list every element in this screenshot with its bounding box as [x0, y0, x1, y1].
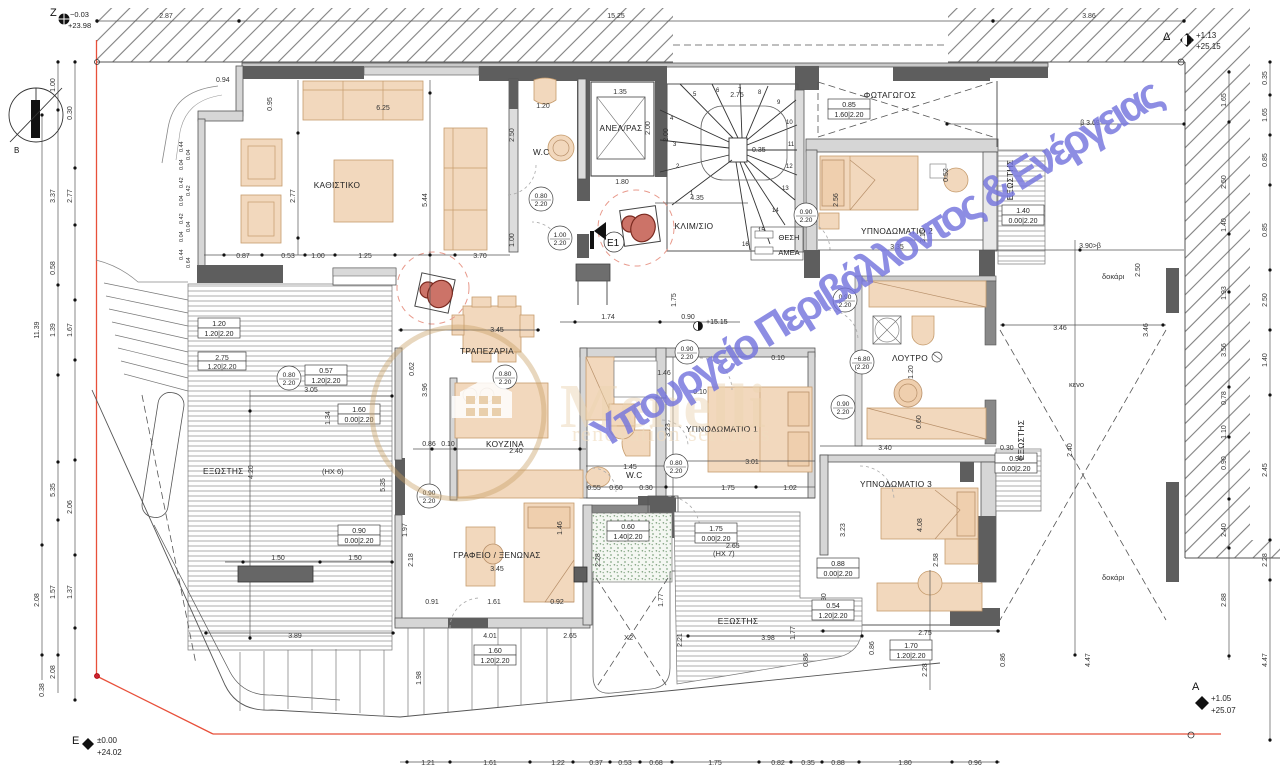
- svg-text:1.40: 1.40: [1221, 218, 1228, 232]
- svg-text:1.20: 1.20: [212, 321, 226, 328]
- svg-text:0.62: 0.62: [409, 362, 416, 376]
- svg-text:2.87: 2.87: [159, 13, 173, 20]
- svg-text:0.00|2.20: 0.00|2.20: [1008, 218, 1037, 225]
- svg-text:2.20: 2.20: [423, 498, 436, 505]
- svg-text:4.01: 4.01: [483, 633, 497, 640]
- svg-text:1.20|2.20: 1.20|2.20: [818, 613, 847, 620]
- svg-text:1.77: 1.77: [790, 626, 797, 640]
- svg-text:ΑΜΕΑ: ΑΜΕΑ: [778, 248, 799, 257]
- svg-text:0.30: 0.30: [67, 106, 74, 120]
- svg-text:1.75: 1.75: [708, 760, 722, 767]
- svg-text:2.75: 2.75: [730, 92, 744, 99]
- svg-text:0.78: 0.78: [1221, 391, 1228, 405]
- svg-text:2.40: 2.40: [1221, 523, 1228, 537]
- svg-text:6.25: 6.25: [376, 105, 390, 112]
- svg-text:1.00: 1.00: [554, 232, 567, 239]
- svg-text:2.45: 2.45: [1262, 463, 1269, 477]
- svg-text:1.40: 1.40: [1016, 208, 1030, 215]
- svg-text:0.44: 0.44: [179, 141, 185, 152]
- svg-text:Z: Z: [50, 7, 57, 19]
- svg-text:0.52: 0.52: [943, 168, 950, 182]
- svg-text:X2: X2: [624, 633, 633, 642]
- svg-text:14: 14: [772, 208, 779, 214]
- svg-text:1.22: 1.22: [551, 760, 565, 767]
- svg-text:0.68: 0.68: [649, 760, 663, 767]
- svg-text:0.30: 0.30: [639, 485, 653, 492]
- svg-text:1.60: 1.60: [488, 648, 502, 655]
- svg-text:1.65: 1.65: [1221, 93, 1228, 107]
- svg-text:ΛΟΥΤΡΟ: ΛΟΥΤΡΟ: [892, 353, 928, 363]
- svg-text:1.20: 1.20: [908, 365, 915, 379]
- svg-text:Β: Β: [14, 146, 19, 155]
- svg-text:0.04: 0.04: [179, 231, 185, 242]
- svg-text:4.47: 4.47: [1085, 653, 1092, 667]
- svg-text:2.21: 2.21: [677, 633, 684, 647]
- svg-text:0.88: 0.88: [831, 561, 845, 568]
- svg-text:0.04: 0.04: [186, 149, 192, 160]
- svg-text:+23.98: +23.98: [68, 21, 91, 30]
- svg-text:0.96: 0.96: [968, 760, 982, 767]
- svg-text:1.74: 1.74: [601, 314, 615, 321]
- svg-text:0.42: 0.42: [179, 213, 185, 224]
- svg-text:1.20|2.20: 1.20|2.20: [207, 364, 236, 371]
- svg-text:ΕΞΩΣΤΗΣ: ΕΞΩΣΤΗΣ: [1016, 420, 1026, 461]
- svg-text:2.20: 2.20: [499, 379, 512, 386]
- svg-text:12: 12: [786, 164, 793, 170]
- svg-text:1.75: 1.75: [671, 293, 678, 307]
- svg-text:0.53: 0.53: [281, 253, 295, 260]
- svg-text:0.85: 0.85: [1262, 153, 1269, 167]
- svg-text:0.86: 0.86: [869, 641, 876, 655]
- svg-text:ΚΟΥΖΙΝΑ: ΚΟΥΖΙΝΑ: [486, 439, 524, 449]
- svg-text:ΓΡΑΦΕΙΟ / ΞΕΝΩΝΑΣ: ΓΡΑΦΕΙΟ / ΞΕΝΩΝΑΣ: [453, 550, 541, 560]
- svg-text:11: 11: [788, 142, 795, 148]
- svg-text:0.86: 0.86: [1000, 653, 1007, 667]
- svg-text:(2.20: (2.20: [855, 364, 870, 371]
- svg-text:0.80: 0.80: [499, 371, 512, 378]
- svg-text:0.54: 0.54: [826, 603, 840, 610]
- svg-text:1.20: 1.20: [536, 103, 550, 110]
- svg-text:0.80: 0.80: [535, 193, 548, 200]
- svg-text:−0.03: −0.03: [70, 10, 89, 19]
- svg-text:1.35: 1.35: [613, 89, 627, 96]
- svg-text:0.38: 0.38: [39, 683, 46, 697]
- svg-text:1.61: 1.61: [487, 599, 501, 606]
- svg-text:4.47: 4.47: [1262, 653, 1269, 667]
- svg-text:1.40: 1.40: [1262, 353, 1269, 367]
- svg-text:1.40|2.20: 1.40|2.20: [613, 534, 642, 541]
- svg-text:0.00|2.20: 0.00|2.20: [823, 571, 852, 578]
- svg-text:2.28: 2.28: [922, 663, 929, 677]
- svg-text:0.60: 0.60: [916, 415, 923, 429]
- svg-text:2.28: 2.28: [595, 553, 602, 567]
- svg-text:1.00: 1.00: [50, 78, 57, 92]
- svg-text:2.50: 2.50: [509, 128, 516, 142]
- svg-text:2.08: 2.08: [50, 665, 57, 679]
- svg-text:ΕΞΩΣΤΗΣ: ΕΞΩΣΤΗΣ: [203, 466, 244, 476]
- svg-text:0.00|2.20: 0.00|2.20: [344, 538, 373, 545]
- svg-text:5.35: 5.35: [380, 478, 387, 492]
- svg-text:1.61: 1.61: [483, 760, 497, 767]
- svg-text:1.00: 1.00: [311, 253, 325, 260]
- svg-text:3.89: 3.89: [288, 633, 302, 640]
- svg-text:1.02: 1.02: [783, 485, 797, 492]
- svg-text:2.77: 2.77: [67, 189, 74, 203]
- svg-text:2.40: 2.40: [1067, 443, 1074, 457]
- svg-text:0.04: 0.04: [186, 221, 192, 232]
- svg-text:1.20|2.20: 1.20|2.20: [204, 331, 233, 338]
- svg-text:ΑΝΕΛ/ΡΑΣ: ΑΝΕΛ/ΡΑΣ: [600, 123, 643, 133]
- svg-text:W.C: W.C: [626, 470, 643, 480]
- svg-text:2.20: 2.20: [554, 240, 567, 247]
- svg-text:16: 16: [742, 242, 749, 248]
- svg-text:2.20: 2.20: [800, 217, 813, 224]
- svg-text:0.80: 0.80: [670, 460, 683, 467]
- svg-text:0.04: 0.04: [179, 159, 185, 170]
- svg-text:0.90: 0.90: [800, 209, 813, 216]
- svg-text:13: 13: [782, 186, 789, 192]
- svg-text:+25.07: +25.07: [1211, 706, 1236, 715]
- svg-text:3.86: 3.86: [1082, 13, 1096, 20]
- svg-text:ΦΩΤΑΓΩΓΟΣ: ΦΩΤΑΓΩΓΟΣ: [864, 90, 916, 100]
- svg-text:3.70: 3.70: [473, 253, 487, 260]
- svg-text:10: 10: [786, 120, 793, 126]
- svg-text:1.75: 1.75: [709, 526, 723, 533]
- svg-text:2.18: 2.18: [408, 553, 415, 567]
- svg-text:1.21: 1.21: [421, 760, 435, 767]
- svg-text:ΚΑΘΙΣΤΙΚΟ: ΚΑΘΙΣΤΙΚΟ: [314, 180, 361, 190]
- svg-text:0.94: 0.94: [216, 77, 230, 84]
- svg-text:1.46: 1.46: [557, 521, 564, 535]
- svg-text:+25.15: +25.15: [1196, 42, 1221, 51]
- svg-text:0.35: 0.35: [1262, 71, 1269, 85]
- svg-text:1.93: 1.93: [1221, 286, 1228, 300]
- svg-text:1.57: 1.57: [50, 585, 57, 599]
- svg-text:2.56: 2.56: [833, 193, 840, 207]
- svg-text:1.77: 1.77: [658, 593, 665, 607]
- svg-text:5.44: 5.44: [422, 193, 429, 207]
- svg-text:0.90: 0.90: [681, 314, 695, 321]
- svg-text:W.C: W.C: [533, 147, 550, 157]
- svg-text:0.80: 0.80: [283, 372, 296, 379]
- svg-text:0.42: 0.42: [179, 177, 185, 188]
- svg-text:0.86: 0.86: [803, 653, 810, 667]
- svg-text:(ΗΧ 6): (ΗΧ 6): [322, 467, 344, 476]
- svg-text:1.20|2.20: 1.20|2.20: [480, 658, 509, 665]
- svg-text:3.01: 3.01: [745, 459, 759, 466]
- svg-text:1.20|2.20: 1.20|2.20: [311, 378, 340, 385]
- svg-text:0.90: 0.90: [837, 401, 850, 408]
- svg-text:0.00|2.20: 0.00|2.20: [1001, 466, 1030, 473]
- svg-text:Δ: Δ: [1163, 31, 1171, 43]
- svg-text:ΕΞΩΣΤΗΣ: ΕΞΩΣΤΗΣ: [718, 616, 759, 626]
- svg-text:0.95: 0.95: [267, 97, 274, 111]
- svg-text:0.85: 0.85: [842, 102, 856, 109]
- svg-text:1.60: 1.60: [352, 407, 366, 414]
- svg-text:1.25: 1.25: [358, 253, 372, 260]
- svg-text:3.90>β: 3.90>β: [1079, 243, 1101, 250]
- svg-text:2.88: 2.88: [1221, 593, 1228, 607]
- svg-text:3.05: 3.05: [304, 387, 318, 394]
- svg-text:2.00: 2.00: [645, 121, 652, 135]
- svg-text:3.56: 3.56: [1221, 343, 1228, 357]
- svg-text:1.39: 1.39: [50, 323, 57, 337]
- svg-text:4.08: 4.08: [917, 518, 924, 532]
- svg-text:2.40: 2.40: [509, 448, 523, 455]
- svg-text:1.34: 1.34: [325, 411, 332, 425]
- svg-text:−6.80: −6.80: [854, 356, 871, 363]
- svg-text:±0.00: ±0.00: [97, 736, 118, 745]
- svg-text:2.20: 2.20: [670, 468, 683, 475]
- svg-text:3.45: 3.45: [490, 566, 504, 573]
- svg-text:A: A: [1192, 681, 1200, 693]
- svg-text:3.46: 3.46: [1053, 325, 1067, 332]
- svg-text:0.92: 0.92: [550, 599, 564, 606]
- svg-text:E: E: [72, 735, 79, 747]
- svg-text:3.37: 3.37: [50, 189, 57, 203]
- svg-text:1.80: 1.80: [898, 760, 912, 767]
- svg-text:1.65: 1.65: [1262, 108, 1269, 122]
- svg-text:κενο: κενο: [1069, 380, 1084, 389]
- svg-text:0.64: 0.64: [186, 257, 192, 268]
- svg-text:2.08: 2.08: [34, 593, 41, 607]
- svg-text:2.28: 2.28: [1262, 553, 1269, 567]
- svg-text:2.75: 2.75: [215, 355, 229, 362]
- svg-text:0.44: 0.44: [179, 249, 185, 260]
- svg-text:δοκάρι: δοκάρι: [1102, 272, 1125, 281]
- svg-text:0.55: 0.55: [587, 485, 601, 492]
- svg-text:2.00: 2.00: [663, 128, 670, 142]
- svg-text:0.90: 0.90: [352, 528, 366, 535]
- svg-text:ΘΕΣΗ: ΘΕΣΗ: [779, 233, 800, 242]
- svg-text:0.86: 0.86: [422, 441, 436, 448]
- svg-text:ΚΛΙΜ/ΣΙΟ: ΚΛΙΜ/ΣΙΟ: [675, 221, 714, 231]
- svg-text:0.35: 0.35: [801, 760, 815, 767]
- svg-text:δοκάρι: δοκάρι: [1102, 573, 1125, 582]
- svg-text:1.97: 1.97: [402, 523, 409, 537]
- svg-text:4.20: 4.20: [248, 465, 255, 479]
- svg-text:1.75: 1.75: [721, 485, 735, 492]
- svg-text:2.50: 2.50: [1262, 293, 1269, 307]
- svg-text:0.00|2.20: 0.00|2.20: [701, 536, 730, 543]
- svg-text:0.58: 0.58: [50, 261, 57, 275]
- svg-text:0.88: 0.88: [831, 760, 845, 767]
- svg-text:15.25: 15.25: [607, 13, 625, 20]
- svg-text:0.37: 0.37: [589, 760, 603, 767]
- svg-text:1.80: 1.80: [615, 179, 629, 186]
- svg-text:0.90: 0.90: [1221, 456, 1228, 470]
- svg-text:(ΗΧ 7): (ΗΧ 7): [713, 549, 735, 558]
- svg-text:3.96: 3.96: [422, 383, 429, 397]
- svg-text:+1.05: +1.05: [1211, 694, 1232, 703]
- svg-text:1.67: 1.67: [67, 323, 74, 337]
- svg-text:11.39: 11.39: [34, 321, 41, 338]
- svg-text:0.04: 0.04: [179, 195, 185, 206]
- svg-text:1.98: 1.98: [416, 671, 423, 685]
- svg-text:1.50: 1.50: [348, 555, 362, 562]
- svg-text:ΥΠΝΟΔΩΜΑΤΙΟ 3: ΥΠΝΟΔΩΜΑΤΙΟ 3: [860, 479, 932, 489]
- svg-text:2.50: 2.50: [1135, 263, 1142, 277]
- svg-text:1.10: 1.10: [1221, 425, 1228, 439]
- svg-text:1.20|2.20: 1.20|2.20: [896, 653, 925, 660]
- svg-text:2.06: 2.06: [67, 500, 74, 514]
- svg-text:E1: E1: [607, 238, 620, 249]
- svg-text:2.65: 2.65: [563, 633, 577, 640]
- svg-text:0.60: 0.60: [621, 524, 635, 531]
- svg-text:2.20: 2.20: [837, 409, 850, 416]
- svg-text:1.37: 1.37: [67, 585, 74, 599]
- svg-text:2.50: 2.50: [1221, 175, 1228, 189]
- svg-text:ΤΡΑΠΕΖΑΡΙΑ: ΤΡΑΠΕΖΑΡΙΑ: [460, 346, 514, 356]
- svg-text:1.50: 1.50: [271, 555, 285, 562]
- svg-text:2.20: 2.20: [535, 201, 548, 208]
- svg-text:2.77: 2.77: [290, 189, 297, 203]
- svg-text:+15.15: +15.15: [706, 319, 728, 326]
- svg-text:1.60|2.20: 1.60|2.20: [834, 112, 863, 119]
- svg-text:0.57: 0.57: [319, 368, 333, 375]
- svg-text:0.85: 0.85: [1262, 223, 1269, 237]
- svg-text:5.35: 5.35: [50, 483, 57, 497]
- svg-text:2.20: 2.20: [283, 380, 296, 387]
- svg-text:0.53: 0.53: [618, 760, 632, 767]
- svg-text:0.60: 0.60: [609, 485, 623, 492]
- svg-text:0.30: 0.30: [1000, 445, 1014, 452]
- svg-text:0.82: 0.82: [771, 760, 785, 767]
- svg-text:0.10: 0.10: [441, 441, 455, 448]
- svg-text:1.00: 1.00: [509, 233, 516, 247]
- svg-text:+1.13: +1.13: [1196, 31, 1217, 40]
- svg-text:+24.02: +24.02: [97, 748, 122, 757]
- svg-text:3.23: 3.23: [840, 523, 847, 537]
- svg-text:1.70: 1.70: [904, 643, 918, 650]
- svg-text:4.35: 4.35: [690, 195, 704, 202]
- svg-text:2.65: 2.65: [726, 543, 740, 550]
- svg-text:0.42: 0.42: [186, 185, 192, 196]
- svg-text:2.58: 2.58: [933, 553, 940, 567]
- svg-text:0.35: 0.35: [752, 147, 766, 154]
- svg-text:0.87: 0.87: [236, 253, 250, 260]
- svg-text:0.91: 0.91: [425, 599, 439, 606]
- svg-text:0.00|2.20: 0.00|2.20: [344, 417, 373, 424]
